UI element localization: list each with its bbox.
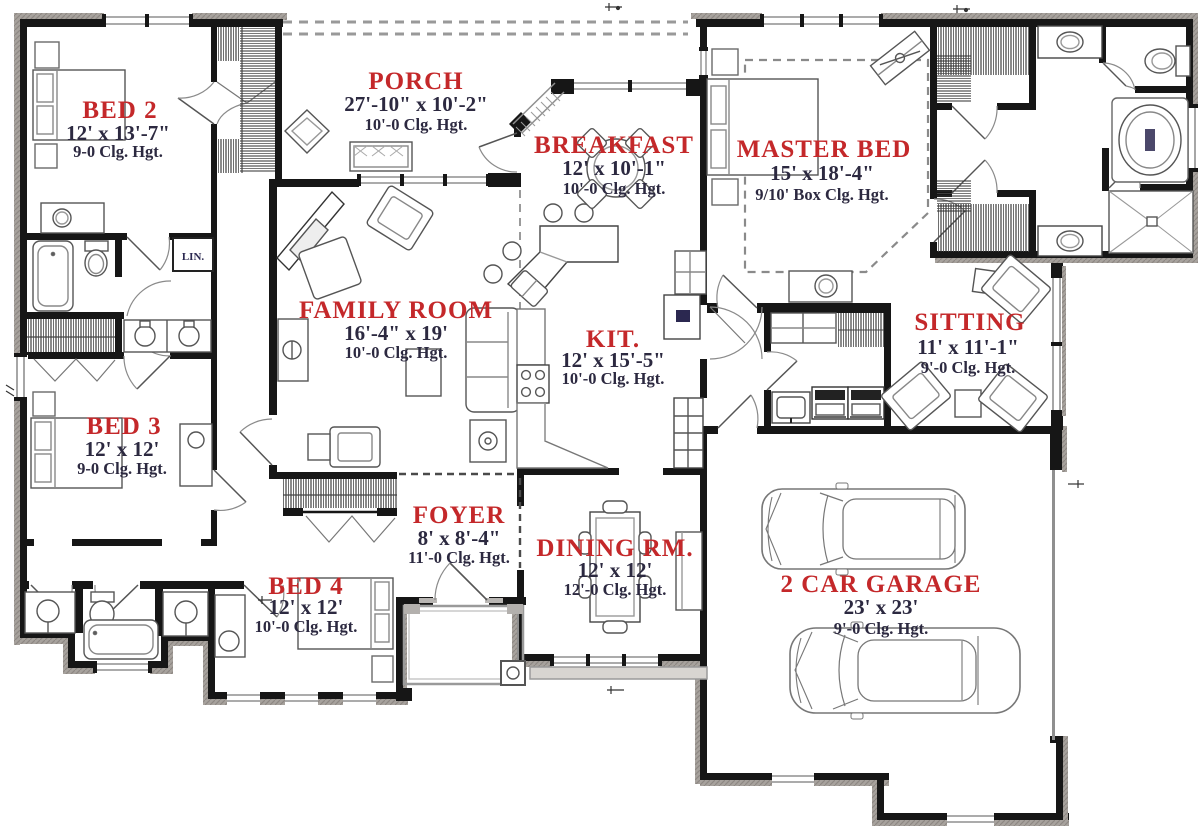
svg-text:16'-4" x 19': 16'-4" x 19' xyxy=(344,321,448,345)
svg-text:BREAKFAST: BREAKFAST xyxy=(534,132,694,159)
svg-text:11'-0 Clg. Hgt.: 11'-0 Clg. Hgt. xyxy=(408,548,510,567)
svg-text:MASTER BED: MASTER BED xyxy=(737,136,912,163)
svg-text:9-0 Clg. Hgt.: 9-0 Clg. Hgt. xyxy=(73,142,163,161)
svg-text:27'-10" x 10'-2": 27'-10" x 10'-2" xyxy=(344,92,487,116)
svg-text:12' x 12': 12' x 12' xyxy=(578,558,653,582)
svg-text:BED 2: BED 2 xyxy=(82,97,157,124)
svg-text:9/10' Box Clg. Hgt.: 9/10' Box Clg. Hgt. xyxy=(755,185,888,204)
svg-text:9-0 Clg. Hgt.: 9-0 Clg. Hgt. xyxy=(77,459,167,478)
svg-text:2 CAR GARAGE: 2 CAR GARAGE xyxy=(781,571,982,598)
svg-text:SITTING: SITTING xyxy=(914,309,1025,336)
svg-text:10'-0 Clg. Hgt.: 10'-0 Clg. Hgt. xyxy=(365,115,468,134)
svg-text:12' x 12': 12' x 12' xyxy=(269,595,344,619)
svg-text:FOYER: FOYER xyxy=(413,502,506,529)
svg-text:10'-0 Clg. Hgt.: 10'-0 Clg. Hgt. xyxy=(255,617,358,636)
svg-text:10'-0 Clg. Hgt.: 10'-0 Clg. Hgt. xyxy=(562,369,665,388)
svg-text:PORCH: PORCH xyxy=(368,68,463,95)
svg-text:8' x 8'-4": 8' x 8'-4" xyxy=(418,526,501,550)
svg-text:BED 3: BED 3 xyxy=(86,413,161,440)
svg-text:23' x 23': 23' x 23' xyxy=(844,595,919,619)
svg-text:9'-0 Clg. Hgt.: 9'-0 Clg. Hgt. xyxy=(834,619,928,638)
svg-text:10'-0 Clg. Hgt.: 10'-0 Clg. Hgt. xyxy=(345,343,448,362)
svg-text:10'-0 Clg. Hgt.: 10'-0 Clg. Hgt. xyxy=(563,179,666,198)
svg-text:12' x 10'-1": 12' x 10'-1" xyxy=(562,156,666,180)
svg-text:11' x 11'-1": 11' x 11'-1" xyxy=(917,335,1019,359)
svg-text:12' x 12': 12' x 12' xyxy=(85,437,160,461)
svg-text:LIN.: LIN. xyxy=(182,251,205,263)
svg-text:15' x 18'-4": 15' x 18'-4" xyxy=(770,161,874,185)
svg-text:9'-0 Clg. Hgt.: 9'-0 Clg. Hgt. xyxy=(921,358,1015,377)
svg-text:FAMILY ROOM: FAMILY ROOM xyxy=(299,297,493,324)
svg-text:12'-0 Clg. Hgt.: 12'-0 Clg. Hgt. xyxy=(564,580,667,599)
